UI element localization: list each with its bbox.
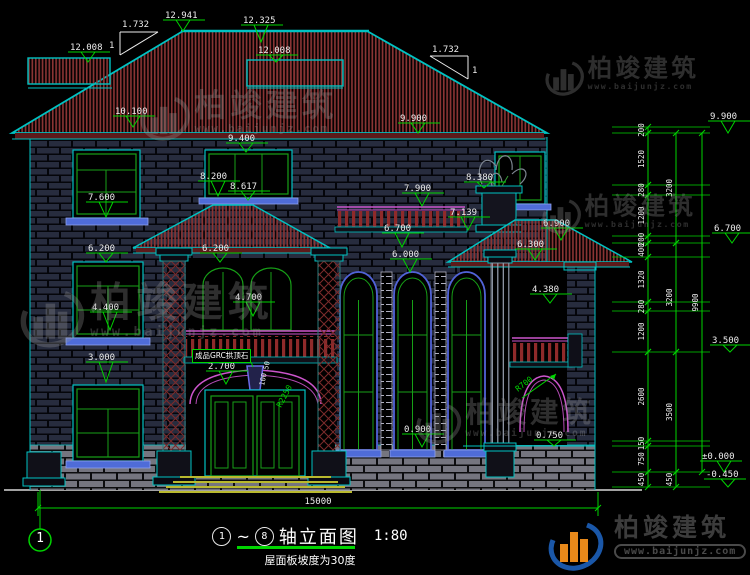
dim-segment: 1320: [637, 254, 651, 305]
svg-text:0.900: 0.900: [404, 425, 431, 435]
corner-pedestal-left: [23, 452, 65, 486]
dim-segment: 3200: [665, 130, 679, 246]
svg-text:1200: 1200: [637, 206, 646, 225]
svg-text:200: 200: [637, 123, 646, 137]
dim-segment: 1520: [637, 130, 651, 188]
svg-text:7.900: 7.900: [404, 184, 431, 194]
svg-text:8.617: 8.617: [230, 182, 257, 192]
elevation-marker: -0.450: [704, 470, 746, 487]
elevation-marker: ±0.000: [700, 452, 742, 472]
dormer-band: [247, 60, 343, 88]
svg-text:12.008: 12.008: [70, 43, 103, 53]
elevation-marker: 12.941: [163, 11, 205, 31]
svg-text:3.500: 3.500: [712, 336, 739, 346]
dim-segment: 280: [637, 182, 651, 198]
svg-text:3200: 3200: [665, 178, 674, 197]
annotation-text: 1: [472, 66, 477, 76]
svg-text:6.200: 6.200: [202, 244, 229, 254]
left-parapet-roof: [28, 58, 112, 88]
svg-text:12.325: 12.325: [243, 16, 276, 26]
annotation-text: 1.732: [432, 45, 459, 55]
svg-text:0.750: 0.750: [536, 431, 563, 441]
elevation-sheet: 12.00812.94112.32512.00810.1009.9009.400…: [0, 0, 750, 575]
svg-text:9900: 9900: [691, 293, 700, 312]
elevation-drawing: 12.00812.94112.32512.00810.1009.9009.400…: [0, 0, 750, 575]
svg-text:150: 150: [637, 436, 646, 450]
svg-text:9.900: 9.900: [400, 114, 427, 124]
svg-text:7.600: 7.600: [88, 193, 115, 203]
svg-text:1320: 1320: [637, 270, 646, 289]
svg-text:4.700: 4.700: [235, 293, 262, 303]
svg-text:4.380: 4.380: [532, 285, 559, 295]
svg-text:1520: 1520: [637, 149, 646, 168]
svg-text:6.000: 6.000: [392, 250, 419, 260]
svg-text:1200: 1200: [637, 322, 646, 341]
svg-text:3500: 3500: [665, 402, 674, 421]
entrance-door: [205, 390, 305, 476]
svg-text:9.900: 9.900: [710, 112, 737, 122]
annotation-text: 1: [109, 41, 114, 51]
elevation-marker: 9.900: [708, 112, 750, 133]
svg-text:8.200: 8.200: [200, 172, 227, 182]
window-1f-left: [66, 385, 150, 468]
pilaster-strip: [435, 272, 446, 450]
arched-window-1: [336, 272, 381, 457]
elevation-marker: 3.500: [710, 336, 750, 352]
svg-text:12.941: 12.941: [165, 11, 198, 21]
svg-text:10.100: 10.100: [115, 107, 148, 117]
dim-segment: 150: [637, 436, 651, 450]
dim-segment: 9900: [691, 130, 705, 475]
annotation-text: 1.732: [122, 20, 149, 30]
svg-text:6.700: 6.700: [384, 224, 411, 234]
dim-segment: 1200: [637, 308, 651, 355]
svg-text:6.700: 6.700: [714, 224, 741, 234]
axis-grid-1: [29, 490, 51, 551]
svg-text:280: 280: [637, 299, 646, 313]
elevation-marker: 6.700: [712, 224, 750, 243]
dim-segment: 280: [637, 299, 651, 314]
svg-text:9.400: 9.400: [228, 134, 255, 144]
svg-text:±0.000: ±0.000: [702, 452, 735, 462]
svg-text:7.139: 7.139: [450, 208, 477, 218]
svg-text:6.200: 6.200: [88, 244, 115, 254]
svg-text:6.900: 6.900: [543, 219, 570, 229]
svg-text:2.700: 2.700: [208, 362, 235, 372]
pilaster-strip: [381, 272, 392, 450]
dim-segment: 200: [637, 123, 651, 137]
arched-window-3: [444, 272, 489, 457]
annotation-text: 15000: [304, 497, 331, 507]
svg-text:2600: 2600: [637, 387, 646, 406]
dim-segment: 1200: [637, 192, 651, 239]
svg-text:400: 400: [637, 243, 646, 257]
svg-text:4.400: 4.400: [92, 303, 119, 313]
svg-text:3200: 3200: [665, 288, 674, 307]
svg-text:8.380: 8.380: [466, 173, 493, 183]
svg-text:12.008: 12.008: [258, 46, 291, 56]
svg-text:750: 750: [637, 452, 646, 466]
dim-segment: 3500: [665, 349, 679, 475]
svg-text:-0.450: -0.450: [706, 470, 739, 480]
svg-text:450: 450: [637, 472, 646, 486]
dim-segment: 2600: [637, 349, 651, 444]
svg-text:280: 280: [637, 183, 646, 197]
svg-text:450: 450: [665, 472, 674, 486]
svg-text:6.300: 6.300: [517, 240, 544, 250]
svg-text:3.000: 3.000: [88, 353, 115, 363]
